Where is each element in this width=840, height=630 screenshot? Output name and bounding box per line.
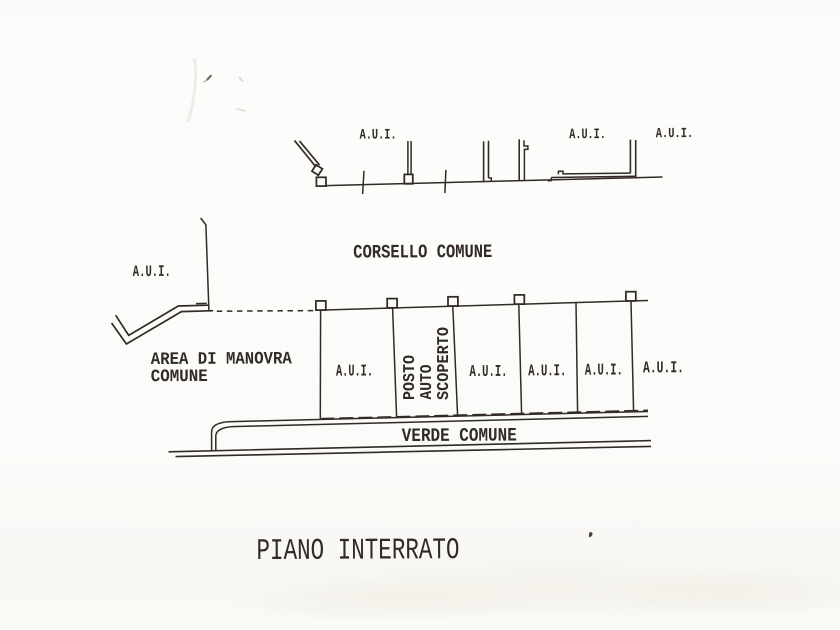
- svg-text:A.U.I.: A.U.I.: [528, 361, 566, 380]
- svg-text:COMUNE: COMUNE: [151, 367, 208, 387]
- svg-text:A.U.I.: A.U.I.: [656, 126, 694, 142]
- svg-text:PIANO INTERRATO: PIANO INTERRATO: [256, 534, 459, 569]
- svg-text:A.U.I.: A.U.I.: [585, 360, 623, 379]
- svg-text:SCOPERTO: SCOPERTO: [434, 327, 453, 400]
- svg-text:A.U.I.: A.U.I.: [569, 127, 606, 143]
- svg-text:VERDE COMUNE: VERDE COMUNE: [402, 424, 517, 447]
- svg-text:AUTO: AUTO: [417, 364, 436, 399]
- svg-text:CORSELLO COMUNE: CORSELLO COMUNE: [353, 241, 492, 264]
- svg-text:A.U.I.: A.U.I.: [336, 361, 373, 380]
- svg-text:A.U.I.: A.U.I.: [469, 362, 507, 381]
- svg-text:A.U.I.: A.U.I.: [360, 127, 397, 143]
- svg-text:A.U.I.: A.U.I.: [643, 358, 684, 377]
- svg-text:A.U.I.: A.U.I.: [133, 263, 171, 281]
